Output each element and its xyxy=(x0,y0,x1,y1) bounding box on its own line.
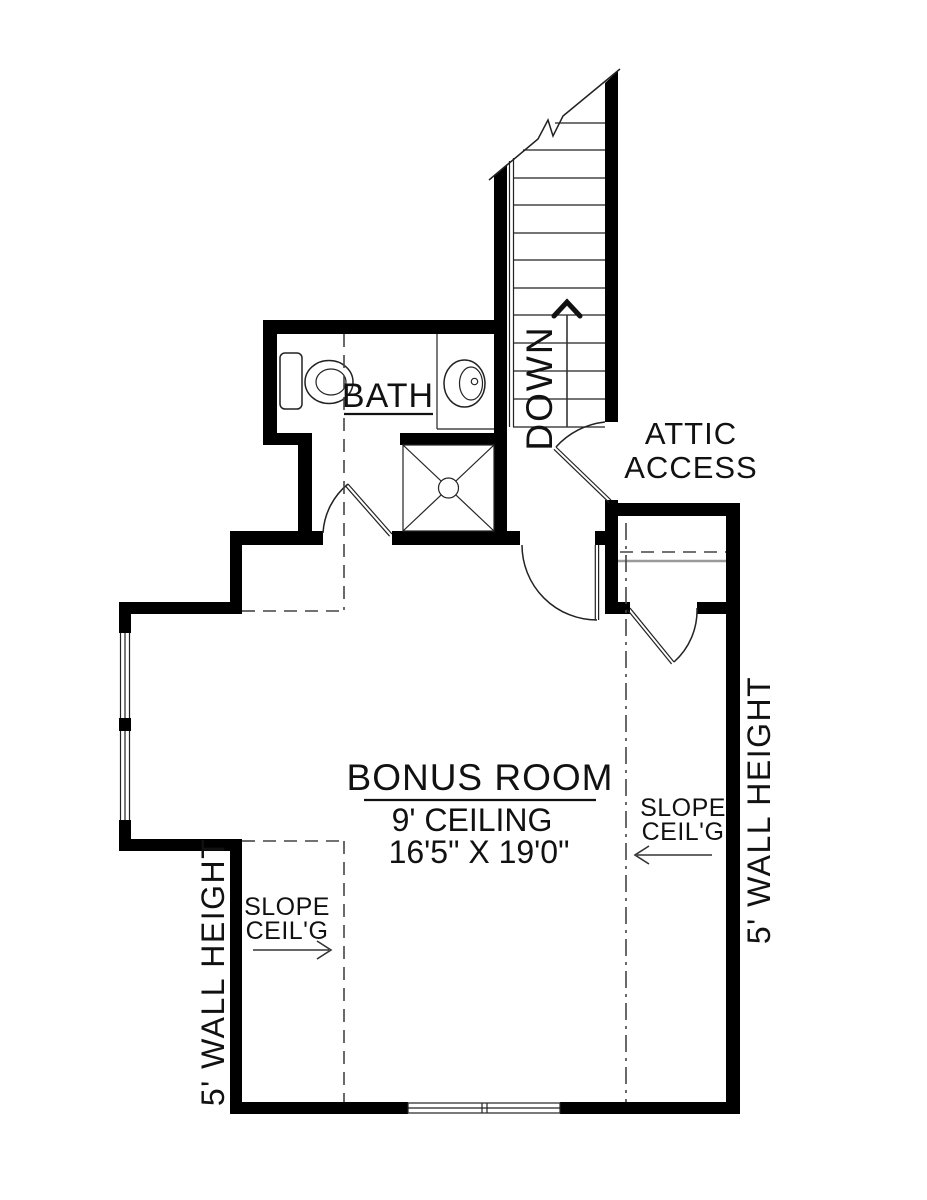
bath-label: BATH xyxy=(342,377,434,415)
wall-bottom-b xyxy=(560,1102,740,1114)
wall-bay-left-a xyxy=(119,602,131,633)
bay-window-lower xyxy=(121,731,130,820)
floor-plan: DOWN xyxy=(0,0,927,1200)
wall-stair-right xyxy=(605,71,618,422)
wall-bay-left-b xyxy=(119,718,131,731)
wall-bath-top xyxy=(263,320,507,334)
bonus-room-ceiling: 9' CEILING xyxy=(392,802,553,838)
floor-plan-page: DOWN xyxy=(0,0,927,1200)
wall-bath-left xyxy=(263,320,277,445)
wall-left-lower xyxy=(230,839,242,1114)
wall-bonus-top-b xyxy=(392,531,520,545)
attic-access-label-1: ATTIC xyxy=(645,416,737,451)
wall-height-left-label: 5' WALL HEIGHT xyxy=(195,838,231,1106)
wall-bath-notch-v xyxy=(298,433,312,531)
bonus-room-title: BONUS ROOM xyxy=(347,757,614,798)
labels: BATH ATTIC ACCESS BONUS ROOM 9' CEILING … xyxy=(195,377,777,1106)
bay-window-upper xyxy=(121,633,130,718)
shower-drain xyxy=(439,478,459,498)
wall-stair-left xyxy=(494,164,507,545)
bonus-room-door xyxy=(522,545,599,620)
arrow-up-icon xyxy=(554,302,580,316)
sink xyxy=(444,360,485,407)
closet-door xyxy=(628,608,697,664)
wall-height-right-label: 5' WALL HEIGHT xyxy=(741,676,777,944)
wall-bonus-top-a xyxy=(242,531,323,545)
down-label: DOWN xyxy=(519,325,560,450)
stair-cut-line xyxy=(489,69,620,180)
wall-bay-top xyxy=(119,602,242,614)
staircase: DOWN xyxy=(489,69,620,451)
attic-access-label-2: ACCESS xyxy=(624,450,757,485)
stair-door xyxy=(554,422,611,502)
stair-stringer xyxy=(510,158,514,427)
shower xyxy=(403,445,494,531)
closet-shelf xyxy=(618,552,726,561)
wall-right xyxy=(726,503,740,1114)
bonus-room-dimensions: 16'5" X 19'0" xyxy=(389,834,570,870)
wall-closet-top xyxy=(605,503,740,516)
bottom-window xyxy=(408,1103,560,1113)
slope-right-label-2: CEIL'G xyxy=(642,818,725,846)
slope-arrow-right xyxy=(635,846,712,864)
wall-bottom-a xyxy=(230,1102,408,1114)
wall-left-upper xyxy=(230,531,242,614)
wall-closet-bottom-b xyxy=(697,602,740,614)
bath-fixtures xyxy=(280,334,494,531)
wall-closet-left xyxy=(605,500,618,614)
windows xyxy=(121,633,561,1113)
slope-left-label-2: CEIL'G xyxy=(246,917,329,945)
bath-door xyxy=(323,484,392,536)
wall-shower-top xyxy=(400,433,507,445)
